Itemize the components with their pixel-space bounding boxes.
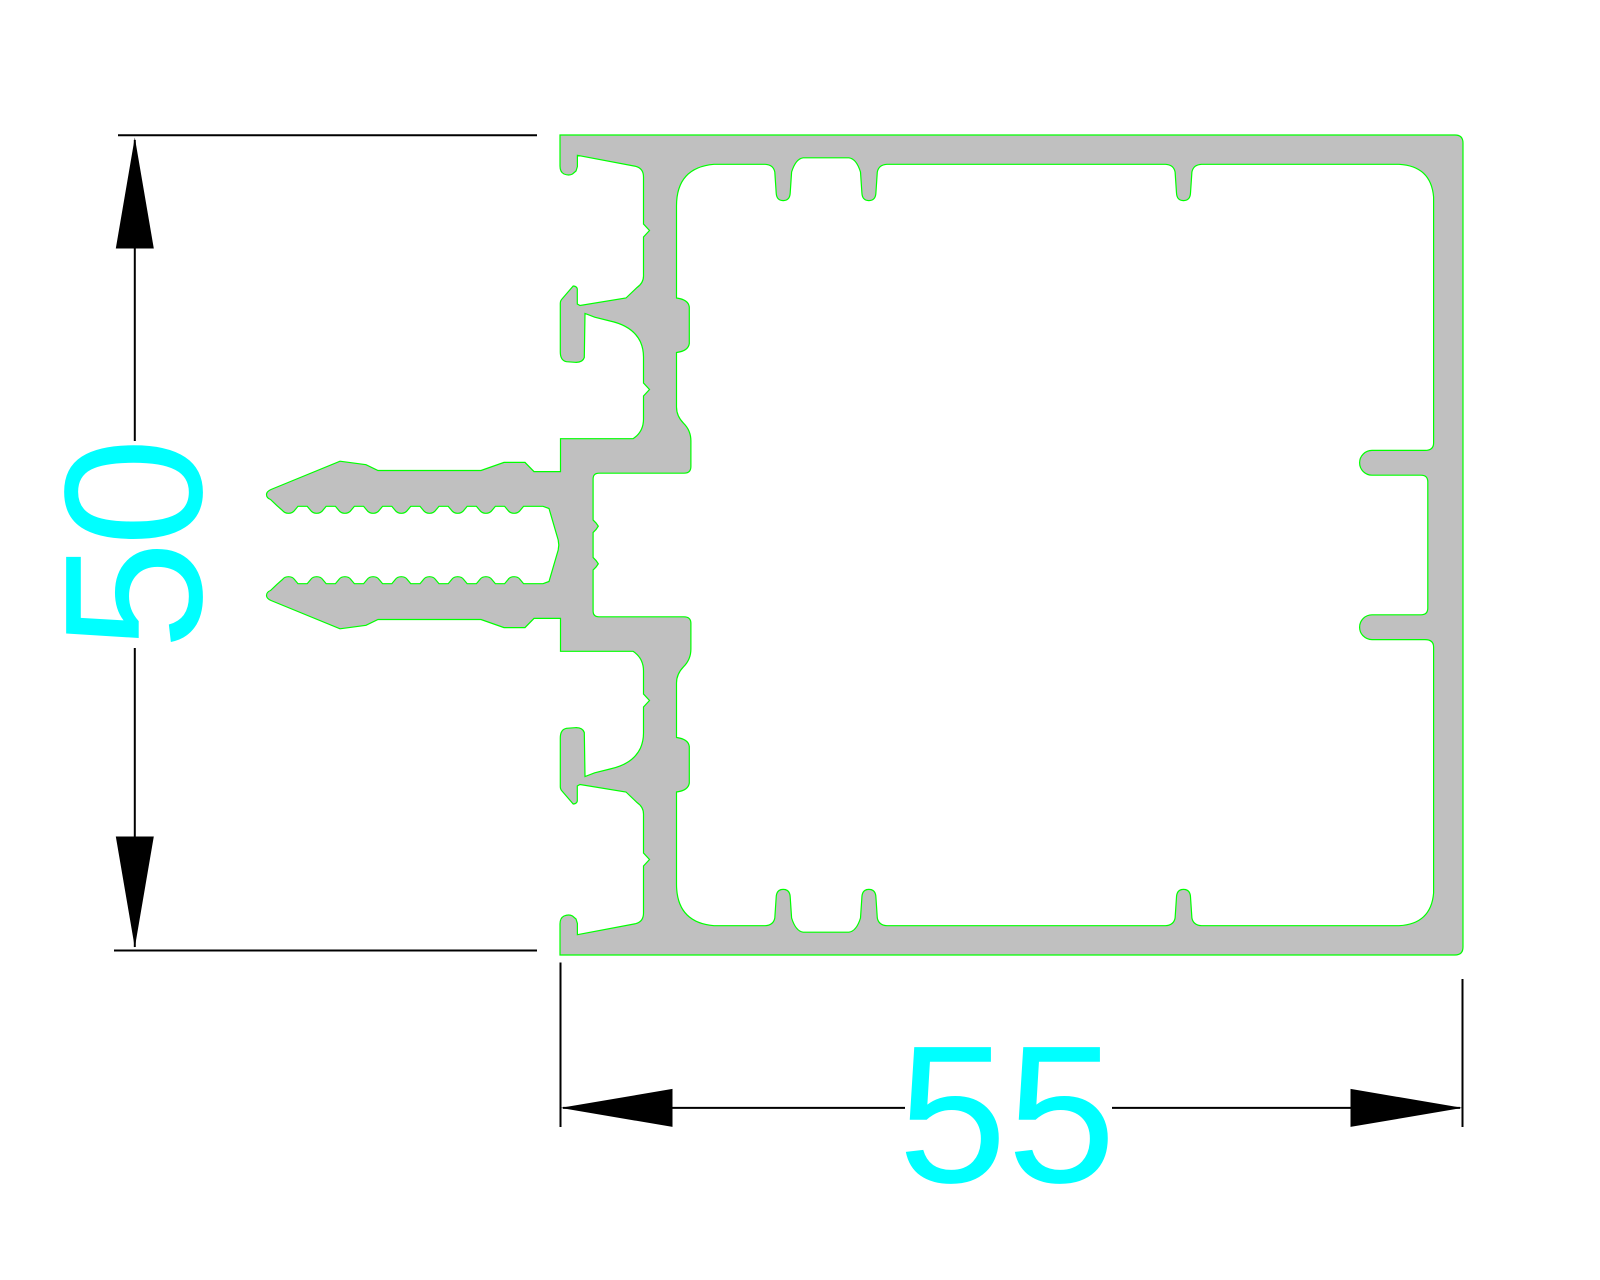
svg-text:0: 0 [24, 438, 243, 547]
svg-text:5: 5 [24, 541, 243, 650]
svg-text:55: 55 [898, 1005, 1116, 1224]
